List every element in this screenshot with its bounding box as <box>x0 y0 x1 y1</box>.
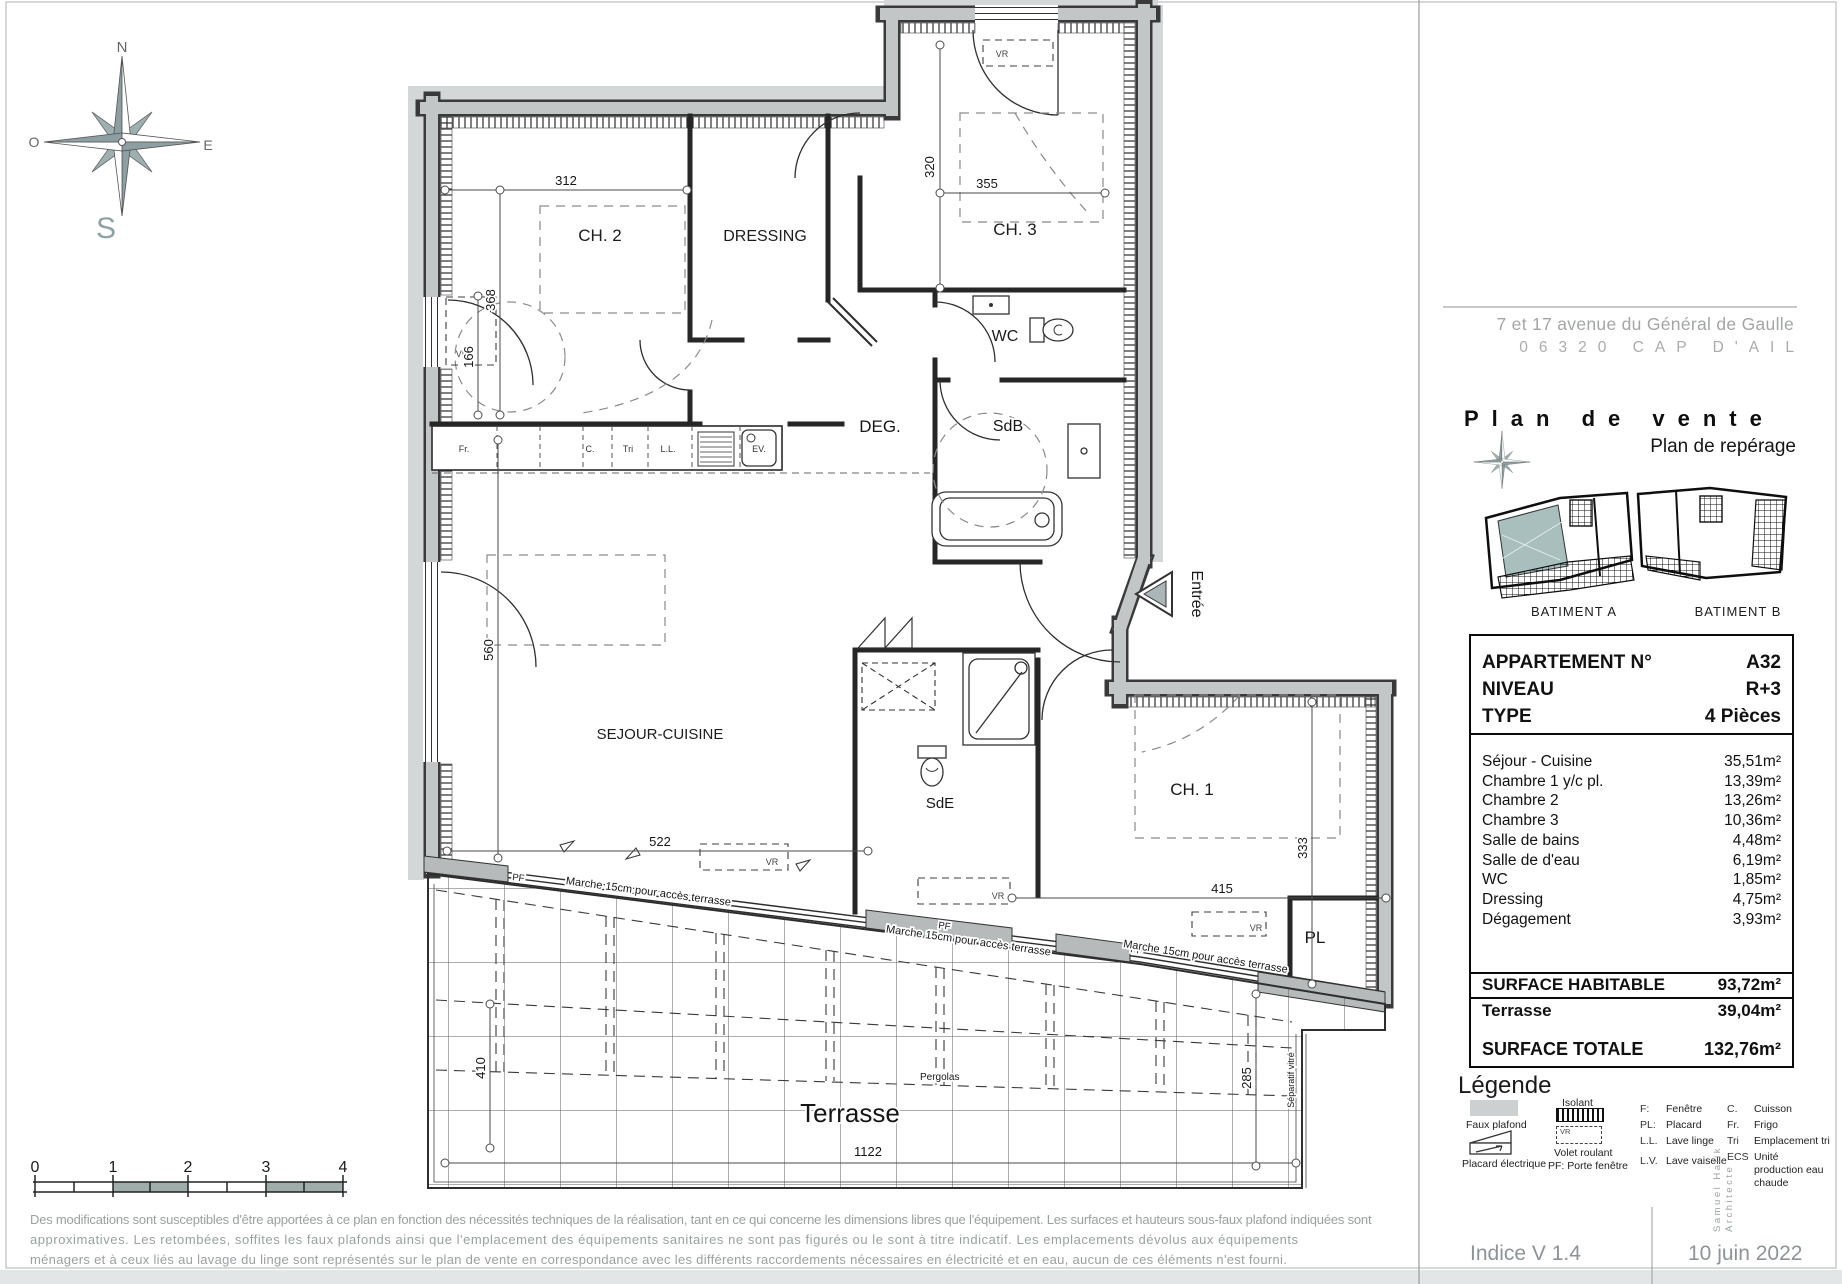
abbr-key: C. <box>1727 1103 1754 1116</box>
kitchen-lavelinge-label: L.L. <box>660 444 675 454</box>
terrasse-value: 39,04m² <box>1718 1001 1781 1021</box>
abbr-value: Cuisson <box>1754 1103 1792 1115</box>
abbr-key: Fr. <box>1727 1119 1754 1132</box>
abbr-value: Placard <box>1666 1119 1702 1131</box>
surface-habitable-row: SURFACE HABITABLE 93,72m² <box>1482 975 1781 995</box>
room-label-wc: WC <box>992 328 1019 345</box>
surface-totale-value: 132,76m² <box>1704 1039 1781 1060</box>
table-row: WC1,85m² <box>1482 870 1781 890</box>
compass-n: N <box>117 39 128 56</box>
room-label-deg: DEG. <box>859 417 901 436</box>
door-arcs <box>441 30 1120 720</box>
area-label: Chambre 3 <box>1482 811 1559 831</box>
architect-title: Architecte <box>1724 1146 1736 1232</box>
table-header: APPARTEMENT N°A32 NIVEAUR+3 TYPE4 Pièces <box>1482 649 1781 730</box>
type-value: 4 Pièces <box>1705 703 1781 730</box>
abbr-key: F: <box>1640 1103 1666 1116</box>
room-label-ch1: CH. 1 <box>1170 780 1213 799</box>
table-row: Chambre 1 y/c pl.13,39m² <box>1482 772 1781 792</box>
room-label-sdb: SdB <box>993 418 1023 435</box>
dim-1122: 1122 <box>854 1144 882 1159</box>
placard-electrique-label: Placard électrique <box>1462 1158 1546 1171</box>
room-label-terrasse: Terrasse <box>800 1098 900 1128</box>
surface-habitable-label: SURFACE HABITABLE <box>1482 975 1665 995</box>
pergolas-label: Pergolas <box>920 1072 959 1083</box>
architect-name: Samuel Halik <box>1712 1146 1724 1232</box>
level-value: R+3 <box>1746 676 1781 703</box>
address-line2: 06320 CAP D'AIL <box>1496 336 1805 360</box>
area-value: 35,51m² <box>1724 752 1781 772</box>
table-row: NIVEAUR+3 <box>1482 676 1781 703</box>
area-label: Dressing <box>1482 890 1543 910</box>
abbr-value: Unité production eau chaude <box>1754 1151 1827 1190</box>
area-value: 3,93m² <box>1733 910 1781 930</box>
furniture-dashed <box>455 113 1340 838</box>
disclaimer-line3: ménagers et à ceux liés au lavage du lin… <box>30 1252 1287 1267</box>
legend-abbr-ll: L.L.Lave linge <box>1640 1135 1714 1148</box>
project-address: 7 et 17 avenue du Général de Gaulle 0632… <box>1496 312 1794 360</box>
abbr-key: L.L. <box>1640 1135 1666 1148</box>
room-label-sde: SdE <box>926 795 954 812</box>
table-row: Salle de bains4,48m² <box>1482 831 1781 851</box>
key-plan-subtitle: Plan de repérage <box>1650 436 1796 458</box>
room-label-ch2: CH. 2 <box>578 226 621 245</box>
batiment-a-label: BATIMENT A <box>1531 604 1617 619</box>
abbr-value: Fenêtre <box>1666 1103 1702 1115</box>
room-label-dressing: DRESSING <box>723 228 807 245</box>
pf-tag: PF <box>512 872 526 884</box>
kitchen-tri-label: Tri <box>623 444 633 454</box>
placard-electrique-icon <box>1468 1128 1514 1156</box>
scale-4: 4 <box>339 1159 348 1176</box>
dim-166: 166 <box>461 346 476 368</box>
dim-410: 410 <box>473 1057 488 1079</box>
dim-355: 355 <box>976 176 998 191</box>
scale-2: 2 <box>184 1159 193 1176</box>
insulation-hatch <box>441 23 1376 990</box>
dim-312: 312 <box>555 173 577 188</box>
area-label: Salle de d'eau <box>1482 851 1580 871</box>
disclaimer-line1: Des modifications sont susceptibles d'êt… <box>30 1212 1371 1227</box>
dim-560: 560 <box>481 639 496 661</box>
table-row: Dressing4,75m² <box>1482 890 1781 910</box>
vr-tag: VR <box>996 49 1009 59</box>
table-row: TYPE4 Pièces <box>1482 703 1781 730</box>
scale-3: 3 <box>262 1159 271 1176</box>
legend-abbr-tri: TriEmplacement tri <box>1727 1135 1830 1148</box>
compass-o: O <box>29 134 40 150</box>
room-label-sejour: SEJOUR-CUISINE <box>597 726 724 743</box>
kitchen-frigo-label: Fr. <box>459 444 470 454</box>
legend-abbr-f: F:Fenêtre <box>1640 1103 1702 1116</box>
area-label: Chambre 2 <box>1482 791 1559 811</box>
dim-285: 285 <box>1239 1067 1254 1089</box>
area-label: WC <box>1482 870 1508 890</box>
abbr-value: Frigo <box>1754 1119 1778 1131</box>
terrasse-label: Terrasse <box>1482 1001 1552 1021</box>
apartment-number-label: APPARTEMENT N° <box>1482 649 1652 676</box>
sanitary-fixtures <box>858 296 1100 786</box>
porte-fenetre-label: PF: Porte fenêtre <box>1548 1160 1628 1173</box>
area-value: 1,85m² <box>1733 870 1781 890</box>
area-value: 13,39m² <box>1724 772 1781 792</box>
level-label: NIVEAU <box>1482 676 1554 703</box>
dim-522: 522 <box>649 834 671 849</box>
kitchen-evier-label: EV. <box>752 444 766 454</box>
volet-roulant-label: Volet roulant <box>1554 1147 1612 1160</box>
separatif-vitre-label: Séparatif vitré <box>1286 1052 1296 1108</box>
dim-368: 368 <box>483 289 498 311</box>
legend-abbr-fr: Fr.Frigo <box>1727 1119 1778 1132</box>
dim-320: 320 <box>922 156 937 178</box>
area-label: Séjour - Cuisine <box>1482 752 1592 772</box>
kitchen-cuisson-label: C. <box>586 444 595 454</box>
dim-415: 415 <box>1211 881 1233 896</box>
area-label: Salle de bains <box>1482 831 1579 851</box>
apartment-number-value: A32 <box>1746 649 1781 676</box>
scale-0: 0 <box>31 1159 40 1176</box>
room-label-entree: Entrée <box>1188 570 1205 617</box>
kitchen-counter: Fr. C. Tri L.L. EV. <box>432 426 930 473</box>
surface-totale-row: SURFACE TOTALE 132,76m² <box>1482 1039 1781 1060</box>
room-label-pl: PL <box>1305 928 1326 947</box>
architect-signature: Samuel Halik Architecte <box>1712 1146 1736 1232</box>
table-row: Dégagement3,93m² <box>1482 910 1781 930</box>
area-value: 10,36m² <box>1724 811 1781 831</box>
faux-plafond-swatch <box>1470 1100 1518 1116</box>
vr-tag: VR <box>1250 923 1263 933</box>
legend-abbr-pl: PL:Placard <box>1640 1119 1702 1132</box>
interior-walls <box>432 116 1376 985</box>
vr-label: VR <box>1560 1127 1570 1136</box>
room-areas-list: Séjour - Cuisine35,51m² Chambre 1 y/c pl… <box>1482 752 1781 929</box>
surface-habitable-value: 93,72m² <box>1718 975 1781 995</box>
compass-s: S <box>96 212 116 245</box>
legend-title: Légende <box>1458 1072 1551 1100</box>
scale-bar: 0 1 2 3 4 <box>31 1159 348 1197</box>
compass-e: E <box>203 137 212 153</box>
area-value: 13,26m² <box>1724 791 1781 811</box>
table-row: Séjour - Cuisine35,51m² <box>1482 752 1781 772</box>
legend-abbr-c: C.Cuisson <box>1727 1103 1792 1116</box>
abbr-value: Emplacement tri <box>1754 1135 1830 1147</box>
address-line1: 7 et 17 avenue du Général de Gaulle <box>1496 312 1794 336</box>
isolant-icon <box>1556 1108 1604 1122</box>
surface-totale-label: SURFACE TOTALE <box>1482 1039 1643 1060</box>
document-date: 10 juin 2022 <box>1688 1242 1802 1266</box>
room-label-ch3: CH. 3 <box>993 220 1036 239</box>
abbr-key: L.V. <box>1640 1155 1666 1168</box>
version-indice: Indice V 1.4 <box>1470 1242 1581 1266</box>
compass-rose: N O E S <box>29 39 213 245</box>
area-value: 4,48m² <box>1733 831 1781 851</box>
abbr-value: Lave linge <box>1666 1135 1714 1147</box>
volet-roulant-icon: VR <box>1556 1126 1602 1144</box>
area-value: 4,75m² <box>1733 890 1781 910</box>
vr-tag: VR <box>766 857 779 867</box>
document-title: Plan de vente <box>1464 406 1775 432</box>
apartment-info-table: APPARTEMENT N°A32 NIVEAUR+3 TYPE4 Pièces… <box>1469 634 1794 1068</box>
type-label: TYPE <box>1482 703 1532 730</box>
area-label: Chambre 1 y/c pl. <box>1482 772 1603 792</box>
area-label: Dégagement <box>1482 910 1571 930</box>
legend-abbr-ecs: ECSUnité production eau chaude <box>1727 1151 1827 1190</box>
batiment-b-label: BATIMENT B <box>1695 604 1782 619</box>
table-row: Salle de d'eau6,19m² <box>1482 851 1781 871</box>
plan-de-vente-page: N O E S <box>0 0 1842 1284</box>
vr-tag: VR <box>992 891 1005 901</box>
dim-333: 333 <box>1295 837 1310 859</box>
abbr-key: PL: <box>1640 1119 1666 1132</box>
terrasse-row: Terrasse 39,04m² <box>1482 1001 1781 1021</box>
table-row: APPARTEMENT N°A32 <box>1482 649 1781 676</box>
table-row: Chambre 310,36m² <box>1482 811 1781 831</box>
table-row: Chambre 213,26m² <box>1482 791 1781 811</box>
disclaimer-line2: approximatives. Les retombées, soffites … <box>30 1232 1299 1247</box>
scale-1: 1 <box>109 1159 118 1176</box>
area-value: 6,19m² <box>1733 851 1781 871</box>
